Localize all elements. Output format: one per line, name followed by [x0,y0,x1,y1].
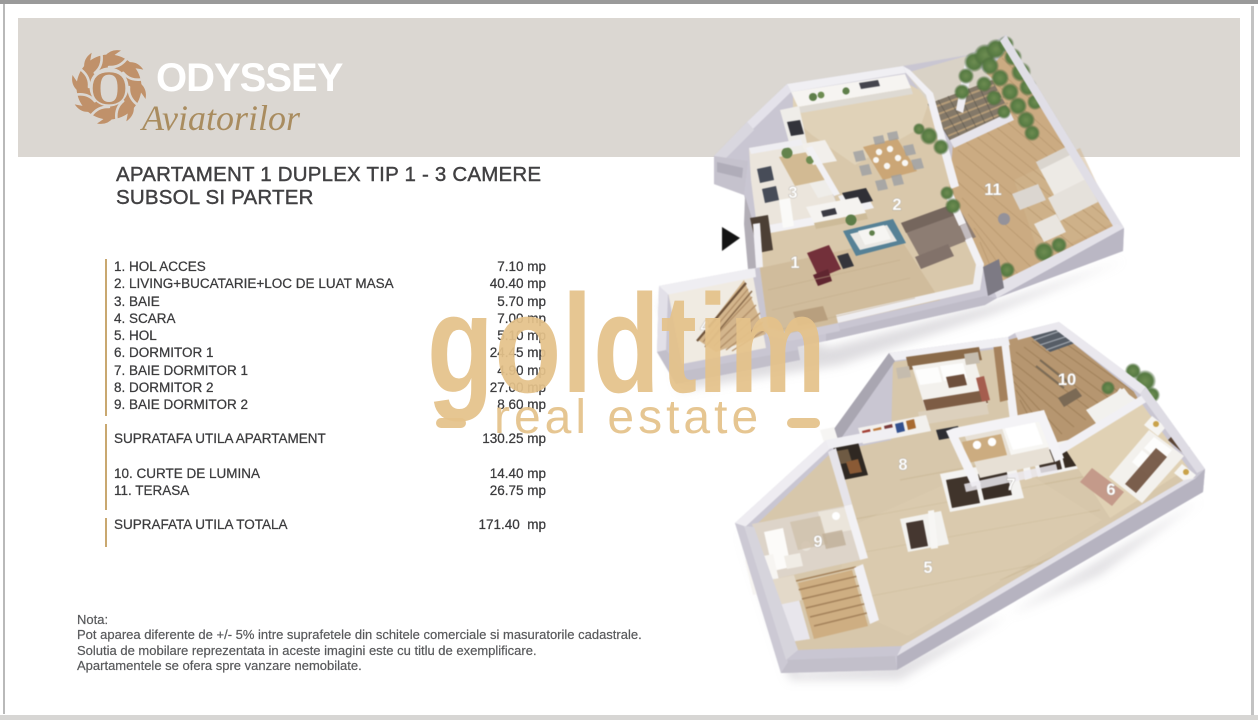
svg-text:7: 7 [1006,476,1015,494]
svg-text:2: 2 [892,196,901,214]
svg-text:9: 9 [813,533,822,551]
svg-text:O: O [90,62,127,115]
svg-text:5: 5 [923,559,932,577]
svg-text:10: 10 [1058,371,1076,389]
svg-text:6: 6 [1106,481,1115,499]
svg-text:ODYSSEY: ODYSSEY [156,56,344,100]
svg-text:8: 8 [898,456,907,474]
svg-text:3: 3 [788,184,797,202]
svg-text:11: 11 [984,181,1001,199]
svg-text:Aviatorilor: Aviatorilor [140,98,301,138]
